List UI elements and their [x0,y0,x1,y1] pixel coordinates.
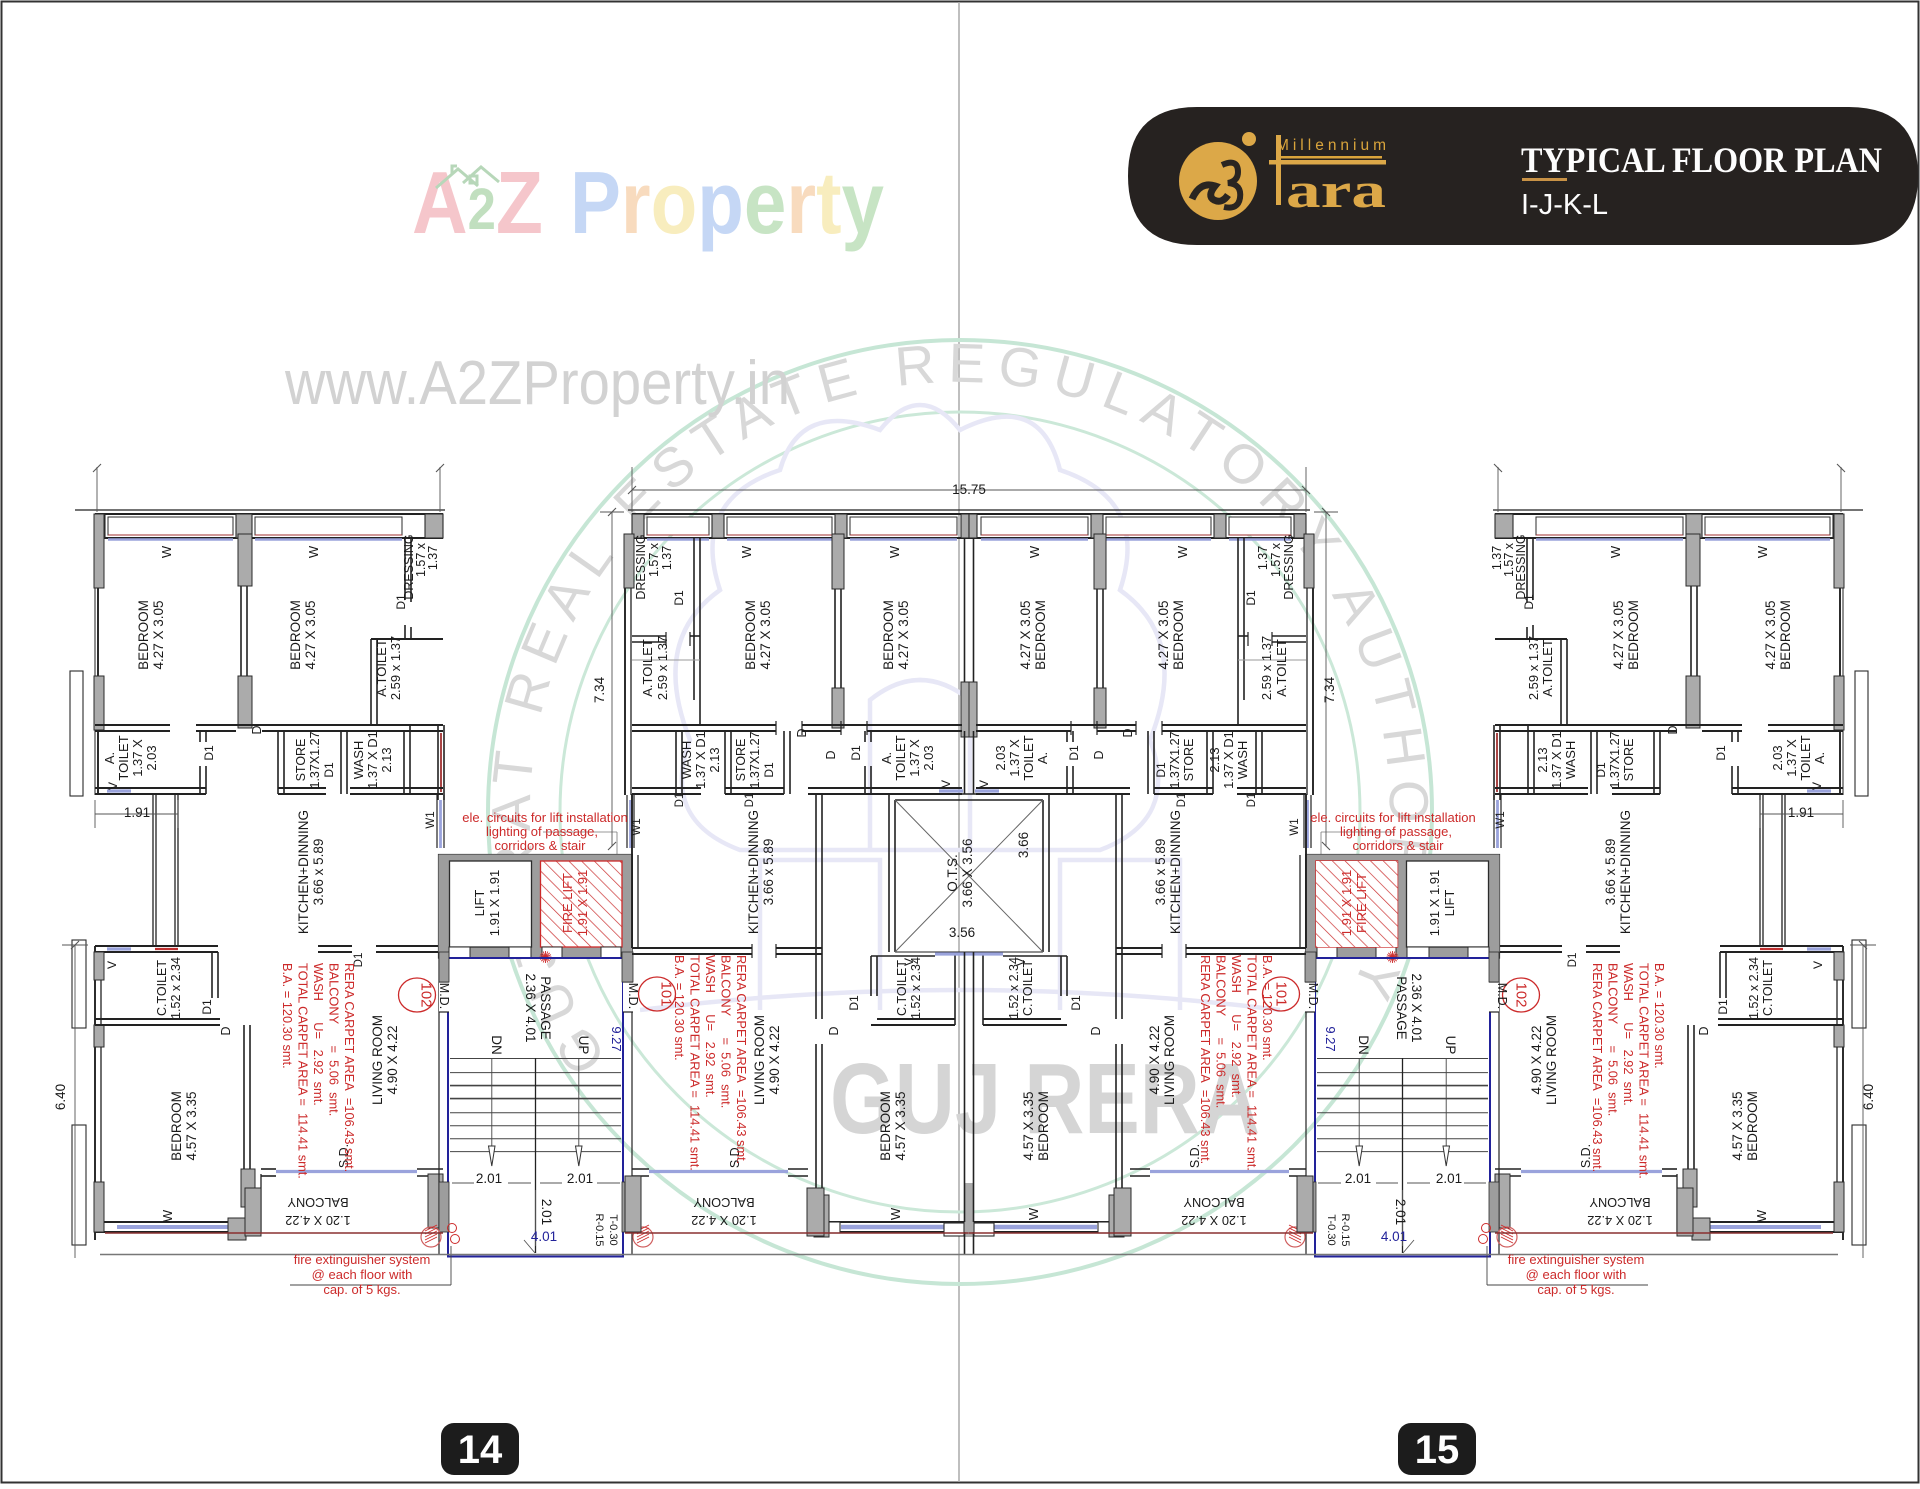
svg-text:2.03: 2.03 [921,745,936,770]
svg-text:2.03: 2.03 [993,745,1008,770]
svg-text:STORE: STORE [294,739,308,782]
svg-text:D1: D1 [1154,762,1168,778]
svg-text:B.A. = 120.30 smt.: B.A. = 120.30 smt. [1652,963,1667,1069]
svg-text:W: W [739,545,754,558]
svg-text:W: W [1755,545,1770,558]
svg-text:W: W [306,545,321,558]
svg-text:1.20 X 4.22: 1.20 X 4.22 [1587,1213,1652,1228]
svg-text:LIVING ROOM: LIVING ROOM [1162,1015,1177,1105]
svg-text:14: 14 [458,1428,503,1472]
svg-text:1.20 X 4.22: 1.20 X 4.22 [691,1213,756,1228]
svg-text:A.TOILET: A.TOILET [640,639,655,697]
svg-text:2.59 x 1.37: 2.59 x 1.37 [388,636,403,700]
svg-text:4.01: 4.01 [531,1229,557,1244]
svg-text:4.57 X 3.35: 4.57 X 3.35 [1021,1091,1036,1160]
svg-text:A.: A. [1035,752,1050,764]
svg-text:V: V [902,958,916,966]
svg-text:1.91 X 1.91: 1.91 X 1.91 [1427,870,1442,937]
svg-text:M.D.: M.D. [1495,983,1509,1009]
svg-text:W: W [159,545,174,558]
svg-text:T-0.30: T-0.30 [1325,1214,1337,1245]
svg-text:D: D [250,725,264,734]
svg-text:RERA CARPET AREA =106.43 smt.: RERA CARPET AREA =106.43 smt. [1590,963,1605,1172]
svg-text:2.03: 2.03 [1770,745,1785,770]
svg-text:KITCHEN+DINNING: KITCHEN+DINNING [1168,810,1183,934]
svg-text:D1: D1 [394,594,408,610]
svg-text:102: 102 [1513,982,1530,1007]
svg-text:BALCONY = 5.06 smt.: BALCONY = 5.06 smt. [719,955,734,1108]
svg-text:7.34: 7.34 [592,676,607,703]
svg-text:2.01: 2.01 [476,1171,502,1186]
svg-text:TOTAL CARPET AREA = 114.41 sm: TOTAL CARPET AREA = 114.41 smt. [296,963,311,1179]
svg-text:V: V [1811,961,1825,969]
svg-text:M.D.: M.D. [1306,983,1320,1009]
svg-text:WASH U= 2.92 smt.: WASH U= 2.92 smt. [703,955,718,1098]
svg-text:cap. of 5 kgs.: cap. of 5 kgs. [1537,1282,1614,1297]
svg-text:2.36 X 4.01: 2.36 X 4.01 [523,973,538,1042]
svg-text:V: V [939,780,953,788]
svg-text:2.01: 2.01 [1393,1199,1408,1225]
svg-text:2.13: 2.13 [1207,747,1222,772]
svg-text:DRESSING: DRESSING [634,534,648,599]
svg-text:W: W [160,1209,175,1222]
svg-text:PASSAGE: PASSAGE [1394,976,1409,1040]
svg-text:Property: Property [570,153,884,252]
svg-text:1.37 X: 1.37 X [907,739,922,777]
svg-text:4.90 X 4.22: 4.90 X 4.22 [1147,1025,1162,1094]
svg-text:TYPICAL FLOOR PLAN: TYPICAL FLOOR PLAN [1521,140,1882,180]
svg-text:FIRE LIFT: FIRE LIFT [560,873,575,933]
svg-text:2.01: 2.01 [567,1171,593,1186]
svg-text:1.37 X: 1.37 X [1007,739,1022,777]
svg-text:BALCONY: BALCONY [287,1195,349,1210]
svg-text:1.37 X D1: 1.37 X D1 [693,731,708,789]
svg-text:TOILET: TOILET [116,735,131,780]
svg-text:1.57 x: 1.57 x [647,542,661,577]
svg-text:BEDROOM: BEDROOM [1745,1091,1760,1161]
svg-text:TOILET: TOILET [1021,735,1036,780]
svg-text:W1: W1 [1289,818,1301,835]
svg-text:M.D.: M.D. [626,983,640,1009]
svg-text:6.40: 6.40 [53,1084,68,1110]
svg-text:2.01: 2.01 [1436,1171,1462,1186]
svg-text:BEDROOM: BEDROOM [881,600,896,670]
svg-text:W: W [1754,1209,1769,1222]
svg-text:9.27: 9.27 [1323,1026,1338,1051]
svg-text:2.36 X 4.01: 2.36 X 4.01 [1409,973,1424,1042]
svg-text:B.A. = 120.30 smt.: B.A. = 120.30 smt. [1260,955,1275,1061]
svg-text:D1: D1 [1714,745,1728,761]
svg-text:V: V [1014,958,1028,966]
svg-text:RERA CARPET AREA =106.43 smt.: RERA CARPET AREA =106.43 smt. [734,955,749,1164]
svg-text:LIFT: LIFT [1442,890,1457,917]
svg-text:C.TOILET: C.TOILET [1761,960,1775,1016]
svg-text:LIVING ROOM: LIVING ROOM [752,1015,767,1105]
svg-text:D1: D1 [1244,590,1258,606]
svg-text:D1: D1 [1594,762,1608,778]
svg-text:D1: D1 [1716,999,1730,1015]
svg-text:TOTAL CARPET AREA = 114.41 sm: TOTAL CARPET AREA = 114.41 smt. [1245,955,1260,1171]
svg-text:1.37: 1.37 [1256,546,1270,570]
svg-text:1.37X1.27: 1.37X1.27 [1168,731,1182,788]
svg-text:V: V [977,780,991,788]
svg-text:@ each floor with: @ each floor with [1526,1267,1627,1282]
svg-text:D1: D1 [1567,953,1579,968]
svg-text:4.27 X 3.05: 4.27 X 3.05 [896,600,911,669]
svg-text:BEDROOM: BEDROOM [878,1091,893,1161]
svg-text:4.90 X 4.22: 4.90 X 4.22 [385,1025,400,1094]
svg-text:3.66 x 5.89: 3.66 x 5.89 [311,839,326,906]
svg-text:fire extinguisher system: fire extinguisher system [1508,1252,1645,1267]
svg-text:1.52 x 2.34: 1.52 x 2.34 [169,957,183,1019]
svg-text:DN: DN [489,1035,504,1055]
svg-text:D1: D1 [847,995,861,1011]
svg-text:D: D [1697,1026,1711,1035]
svg-text:KITCHEN+DINNING: KITCHEN+DINNING [746,810,761,934]
svg-text:102: 102 [418,982,435,1007]
svg-text:V: V [1810,782,1824,790]
svg-text:BALCONY = 5.06 smt.: BALCONY = 5.06 smt. [327,963,342,1116]
svg-text:2.03: 2.03 [144,745,159,770]
svg-text:M.D.: M.D. [437,983,451,1009]
svg-text:LIVING ROOM: LIVING ROOM [370,1015,385,1105]
svg-text:LIFT: LIFT [472,890,487,917]
svg-text:6.40: 6.40 [1861,1084,1876,1110]
svg-text:D: D [1121,728,1135,737]
svg-text:PASSAGE: PASSAGE [538,976,553,1040]
svg-text:WASH U= 2.92 smt.: WASH U= 2.92 smt. [1621,963,1636,1106]
svg-text:1.20 X 4.22: 1.20 X 4.22 [285,1213,350,1228]
svg-text:W1: W1 [631,818,643,835]
svg-text:1.37 X: 1.37 X [130,739,145,777]
svg-text:A.: A. [879,752,894,764]
svg-text:1.37X1.27: 1.37X1.27 [1608,731,1622,788]
svg-text:4.01: 4.01 [1381,1229,1407,1244]
svg-text:D1: D1 [744,793,756,808]
svg-text:1.20 X 4.22: 1.20 X 4.22 [1181,1213,1246,1228]
svg-text:1.37: 1.37 [1490,546,1504,570]
svg-text:D1: D1 [672,590,686,606]
svg-text:@ each floor with: @ each floor with [312,1267,413,1282]
svg-text:1.37X1.27: 1.37X1.27 [748,731,762,788]
svg-text:A.TOILET: A.TOILET [1274,639,1289,697]
svg-text:2.01: 2.01 [539,1199,554,1225]
svg-text:1.37 X D1: 1.37 X D1 [1549,731,1564,789]
svg-text:A.TOILET: A.TOILET [374,639,389,697]
svg-text:D1: D1 [674,793,686,808]
svg-text:D1: D1 [762,762,776,778]
svg-text:W: W [1175,545,1190,558]
svg-text:cap. of 5 kgs.: cap. of 5 kgs. [323,1282,400,1297]
svg-text:4.27 X 3.05: 4.27 X 3.05 [1611,600,1626,669]
svg-text:LIVING ROOM: LIVING ROOM [1544,1015,1559,1105]
svg-text:4.27 X 3.05: 4.27 X 3.05 [1763,600,1778,669]
svg-text:RERA CARPET AREA =106.43 smt.: RERA CARPET AREA =106.43 smt. [1198,955,1213,1164]
svg-text:RERA CARPET AREA =106.43 smt.: RERA CARPET AREA =106.43 smt. [342,963,357,1172]
svg-text:lighting of passage,: lighting of passage, [486,824,598,839]
svg-text:BEDROOM: BEDROOM [1033,600,1048,670]
svg-text:4.27 X 3.05: 4.27 X 3.05 [303,600,318,669]
svg-text:15: 15 [1415,1428,1460,1472]
svg-text:DRESSING: DRESSING [1514,534,1528,599]
svg-text:101: 101 [1273,981,1290,1006]
svg-text:R-0.15: R-0.15 [1339,1213,1351,1246]
svg-text:4.90 X 4.22: 4.90 X 4.22 [1529,1025,1544,1094]
svg-text:lighting of passage,: lighting of passage, [1340,824,1452,839]
svg-text:BALCONY: BALCONY [1183,1195,1245,1210]
svg-text:D1: D1 [1522,594,1536,610]
svg-text:ele. circuits for lift install: ele. circuits for lift installation [1310,810,1475,825]
svg-text:A.: A. [1812,752,1827,764]
svg-text:4.27 X 3.05: 4.27 X 3.05 [151,600,166,669]
svg-text:A.: A. [102,752,117,764]
svg-text:WASH: WASH [351,741,366,780]
svg-text:BEDROOM: BEDROOM [136,600,151,670]
svg-text:D1: D1 [202,745,216,761]
svg-text:UP: UP [576,1036,591,1055]
svg-text:1.37: 1.37 [426,546,440,570]
svg-text:2.13: 2.13 [1535,747,1550,772]
svg-text:WASH U= 2.92 smt.: WASH U= 2.92 smt. [311,963,326,1106]
svg-text:W1: W1 [1495,811,1507,828]
svg-text:W: W [887,545,902,558]
svg-text:D1: D1 [200,999,214,1015]
svg-text:www.A2ZProperty.in: www.A2ZProperty.in [284,349,790,418]
svg-text:O.T.S.: O.T.S. [945,854,960,892]
svg-text:V: V [105,961,119,969]
svg-text:D: D [1666,725,1680,734]
svg-text:2.59 x 1.37: 2.59 x 1.37 [1259,636,1274,700]
svg-text:C.TOILET: C.TOILET [895,960,909,1016]
svg-text:D: D [1092,750,1106,759]
svg-text:3.66 x 5.89: 3.66 x 5.89 [1603,839,1618,906]
svg-text:C.TOILET: C.TOILET [1021,960,1035,1016]
svg-text:D: D [824,750,838,759]
svg-text:4.57 X 3.35: 4.57 X 3.35 [184,1091,199,1160]
svg-text:D1: D1 [322,762,336,778]
svg-text:1.37 X D1: 1.37 X D1 [365,731,380,789]
svg-text:BEDROOM: BEDROOM [1778,600,1793,670]
svg-text:W: W [1608,545,1623,558]
svg-text:1.91: 1.91 [1788,805,1814,820]
svg-text:3.66 x 5.89: 3.66 x 5.89 [761,839,776,906]
svg-text:corridors & stair: corridors & stair [494,838,586,853]
svg-text:D1: D1 [1069,995,1083,1011]
svg-text:DRESSING: DRESSING [1282,534,1296,599]
svg-text:BALCONY = 5.06 smt.: BALCONY = 5.06 smt. [1606,963,1621,1116]
svg-text:W: W [888,1207,903,1220]
svg-text:1.91 X 1.91: 1.91 X 1.91 [1339,870,1354,937]
svg-text:1.91 X 1.91: 1.91 X 1.91 [487,870,502,937]
svg-text:ele. circuits for lift install: ele. circuits for lift installation [462,810,627,825]
svg-text:D: D [1089,1026,1103,1035]
svg-text:STORE: STORE [1182,739,1196,782]
svg-text:W: W [1026,1207,1041,1220]
svg-text:1.37 X D1: 1.37 X D1 [1221,731,1236,789]
svg-text:KITCHEN+DINNING: KITCHEN+DINNING [296,810,311,934]
svg-text:BALCONY: BALCONY [693,1195,755,1210]
svg-text:KITCHEN+DINNING: KITCHEN+DINNING [1618,810,1633,934]
svg-text:WASH U= 2.92 smt.: WASH U= 2.92 smt. [1229,955,1244,1098]
svg-text:BEDROOM: BEDROOM [1171,600,1186,670]
svg-text:BEDROOM: BEDROOM [743,600,758,670]
svg-text:BALCONY = 5.06 smt.: BALCONY = 5.06 smt. [1214,955,1229,1108]
svg-text:3.56: 3.56 [949,925,975,940]
svg-text:B.A. = 120.30 smt.: B.A. = 120.30 smt. [280,963,295,1069]
svg-text:B.A. = 120.30 smt.: B.A. = 120.30 smt. [672,955,687,1061]
svg-text:4.57 X 3.35: 4.57 X 3.35 [1730,1091,1745,1160]
svg-text:D: D [795,728,809,737]
svg-text:TOILET: TOILET [1798,735,1813,780]
svg-text:2.59 x 1.37: 2.59 x 1.37 [1526,636,1541,700]
svg-text:D1: D1 [1176,793,1188,808]
svg-text:2.59 x 1.37: 2.59 x 1.37 [655,636,670,700]
svg-text:TOTAL CARPET AREA = 114.41 sm: TOTAL CARPET AREA = 114.41 smt. [688,955,703,1171]
svg-text:4.27 X 3.05: 4.27 X 3.05 [1156,600,1171,669]
svg-text:4.57 X 3.35: 4.57 X 3.35 [893,1091,908,1160]
svg-text:1.57 x: 1.57 x [1502,542,1516,577]
svg-text:STORE: STORE [734,739,748,782]
svg-text:2.13: 2.13 [707,747,722,772]
svg-text:corridors & stair: corridors & stair [1352,838,1444,853]
svg-text:4.27 X 3.05: 4.27 X 3.05 [758,600,773,669]
svg-text:I-J-K-L: I-J-K-L [1521,189,1608,221]
svg-text:ara: ara [1286,162,1386,218]
svg-text:1.52 x 2.34: 1.52 x 2.34 [1747,957,1761,1019]
svg-text:UP: UP [1443,1036,1458,1055]
svg-text:1.57 x: 1.57 x [1269,542,1283,577]
svg-text:C.TOILET: C.TOILET [155,960,169,1016]
svg-text:1.37X1.27: 1.37X1.27 [308,731,322,788]
svg-text:FIRE LIFT: FIRE LIFT [1354,873,1369,933]
svg-text:2.13: 2.13 [379,747,394,772]
svg-text:D1: D1 [1246,793,1258,808]
svg-text:DN: DN [1356,1035,1371,1055]
svg-text:15.75: 15.75 [952,482,986,497]
svg-text:WASH: WASH [679,741,694,780]
svg-text:BALCONY: BALCONY [1589,1195,1651,1210]
svg-text:1.91: 1.91 [124,805,150,820]
svg-text:W: W [1027,545,1042,558]
svg-text:BEDROOM: BEDROOM [288,600,303,670]
svg-text:1.37 X: 1.37 X [1784,739,1799,777]
svg-text:D: D [827,1026,841,1035]
svg-text:9.27: 9.27 [609,1026,624,1051]
svg-text:4.27 X 3.05: 4.27 X 3.05 [1018,600,1033,669]
svg-text:1.37: 1.37 [660,546,674,570]
svg-text:TOILET: TOILET [893,735,908,780]
svg-text:D1: D1 [849,745,863,761]
svg-text:STORE: STORE [1622,739,1636,782]
svg-text:A.TOILET: A.TOILET [1540,639,1555,697]
svg-text:4.90 X 4.22: 4.90 X 4.22 [767,1025,782,1094]
svg-text:fire extinguisher system: fire extinguisher system [294,1252,431,1267]
svg-text:BEDROOM: BEDROOM [1036,1091,1051,1161]
svg-text:D1: D1 [1067,745,1081,761]
svg-text:3.66: 3.66 [1016,832,1031,858]
svg-text:1.91 X 1.91: 1.91 X 1.91 [575,870,590,937]
svg-text:3.66 X 3.56: 3.66 X 3.56 [960,838,975,907]
svg-text:3.66 x 5.89: 3.66 x 5.89 [1153,839,1168,906]
svg-text:Millennium: Millennium [1276,137,1390,154]
svg-text:D: D [219,1026,233,1035]
svg-text:T-0.30: T-0.30 [607,1214,619,1245]
svg-text:W1: W1 [425,811,437,828]
svg-text:BEDROOM: BEDROOM [169,1091,184,1161]
svg-text:2.01: 2.01 [1345,1171,1371,1186]
svg-text:101: 101 [658,981,675,1006]
svg-text:7.34: 7.34 [1322,676,1337,703]
svg-text:V: V [106,782,120,790]
svg-text:R-0.15: R-0.15 [593,1213,605,1246]
svg-text:BEDROOM: BEDROOM [1626,600,1641,670]
svg-text:WASH: WASH [1563,741,1578,780]
svg-text:TOTAL CARPET AREA = 114.41 sm: TOTAL CARPET AREA = 114.41 smt. [1637,963,1652,1179]
svg-text:WASH: WASH [1235,741,1250,780]
